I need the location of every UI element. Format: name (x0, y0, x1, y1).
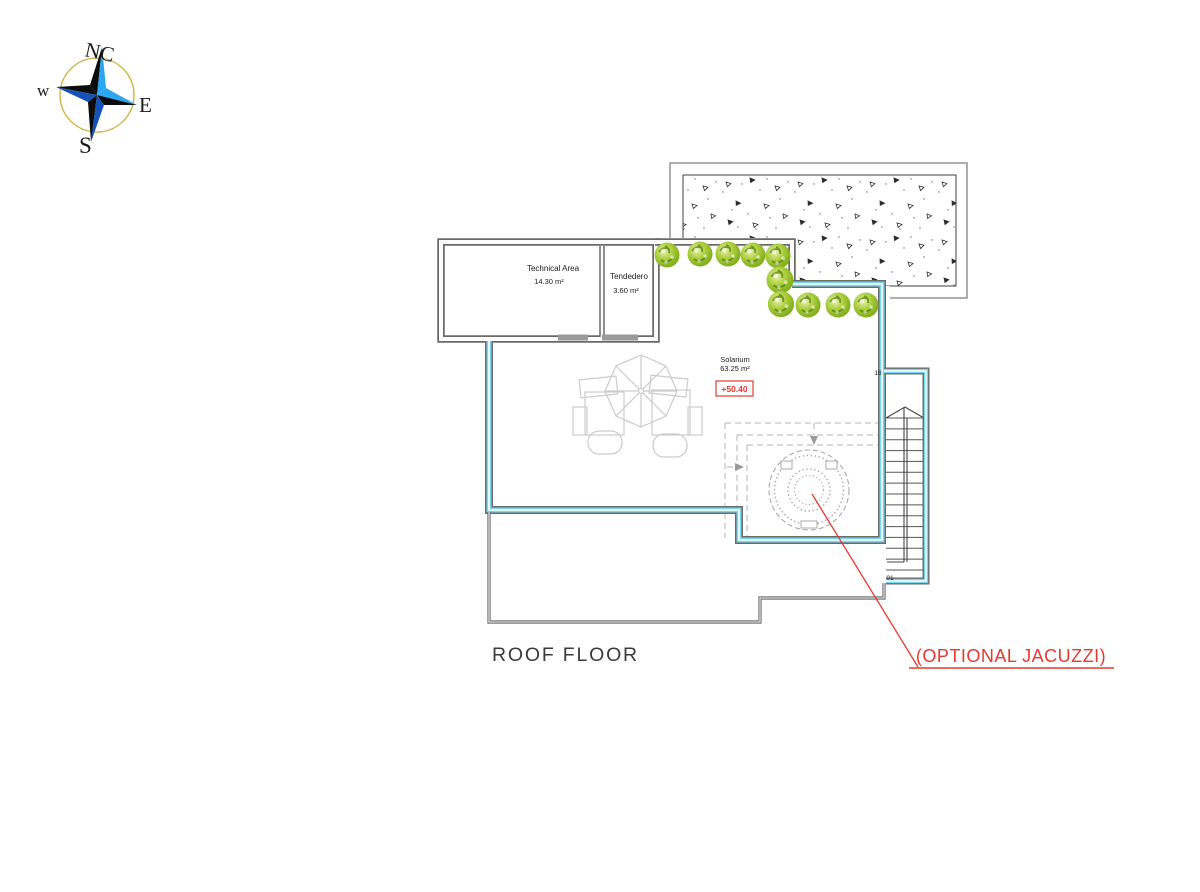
compass-east-label: E (139, 93, 152, 117)
level-marker-badge: +50.40 (716, 381, 753, 396)
solarium-area-value: 63.25 m² (720, 364, 750, 373)
compass-south-label: S (79, 133, 92, 158)
level-marker-value: +50.40 (721, 384, 748, 394)
technical-area-label: Technical Area (527, 264, 580, 273)
bush-icon (826, 293, 851, 318)
bush-icon (796, 293, 821, 318)
bush-icon (768, 291, 794, 317)
floor-title: ROOF FLOOR (492, 644, 639, 666)
bush-icon (741, 243, 766, 268)
compass-north-label: NC (83, 37, 117, 67)
tendedero-label: Tendedero (610, 272, 648, 281)
compass-west-label: w (37, 81, 50, 100)
bush-icon (716, 242, 741, 267)
bush-icon (688, 242, 713, 267)
bush-icon (655, 243, 680, 268)
technical-area-value: 14.30 m² (534, 277, 564, 286)
stair-top-number: 18 (874, 370, 882, 377)
compass-rose: NC w E S (37, 37, 152, 158)
bush-icon (767, 267, 794, 294)
bush-icon (766, 244, 791, 269)
bush-icon (854, 293, 879, 318)
jacuzzi-annotation-label: (OPTIONAL JACUZZI) (916, 646, 1106, 666)
floor-plan-drawing: Technical Area 14.30 m² Tendedero 3.60 m… (0, 0, 1200, 892)
floor-plan-page: Technical Area 14.30 m² Tendedero 3.60 m… (0, 0, 1200, 892)
stair-bottom-number: 01 (886, 575, 894, 582)
tendedero-area-value: 3.60 m² (613, 286, 639, 295)
solarium-label: Solarium (720, 355, 750, 364)
patio-umbrella-icon (605, 355, 677, 427)
